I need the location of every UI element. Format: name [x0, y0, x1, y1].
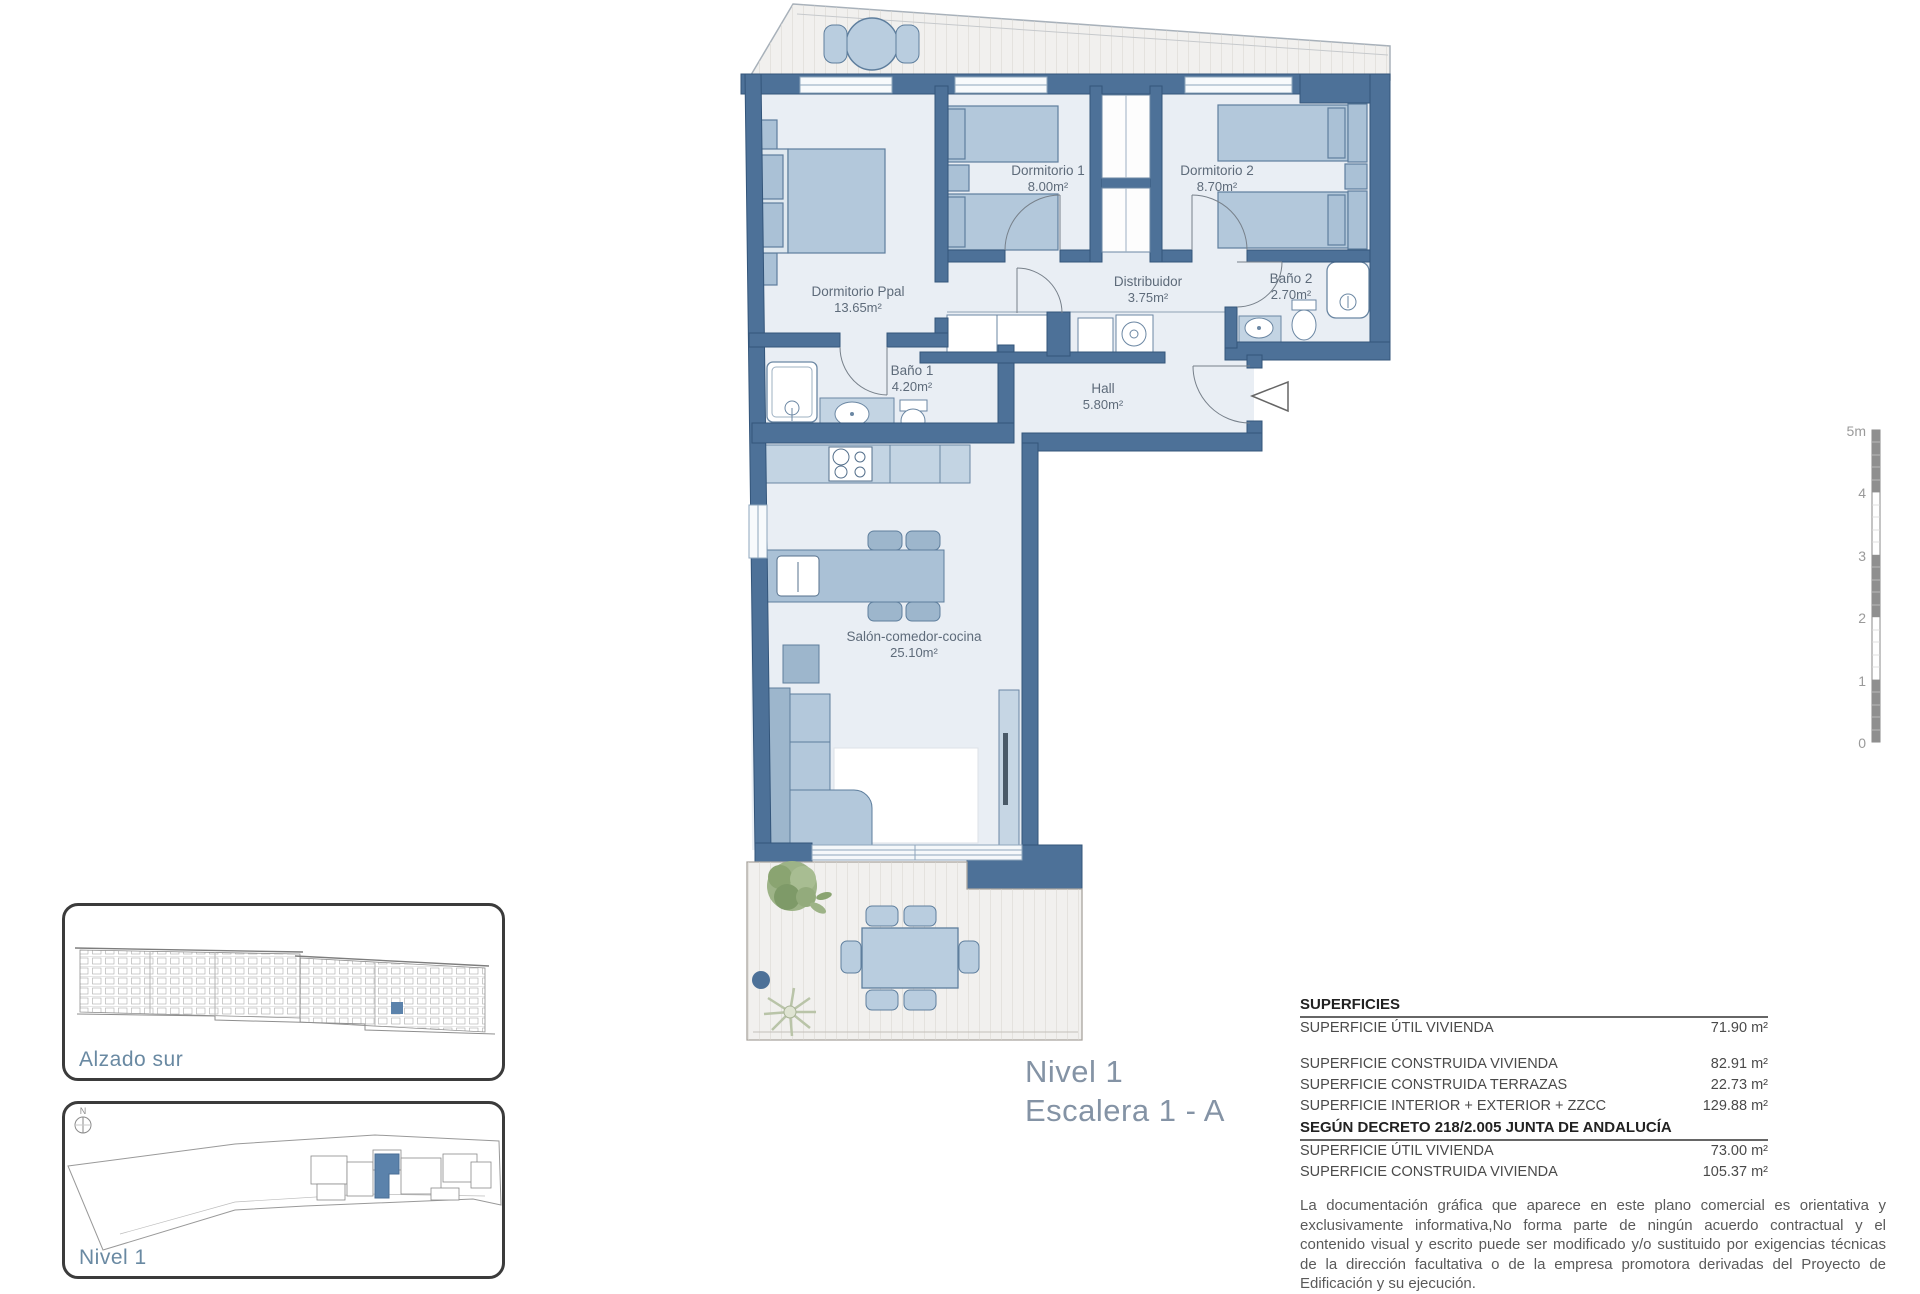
- window: [1185, 77, 1292, 93]
- shower-tray: [1327, 262, 1369, 318]
- nightstand: [945, 165, 969, 191]
- terrace-dining-table: [862, 928, 958, 988]
- svg-text:8.70m²: 8.70m²: [1197, 179, 1238, 194]
- terrace-chair: [904, 906, 936, 926]
- chair: [868, 602, 902, 621]
- nivel-1-box: N Nivel 1: [62, 1101, 505, 1279]
- top-terrace: [748, 4, 1390, 80]
- scale-tick-0: 0: [1858, 735, 1866, 751]
- table-row: SUPERFICIE CONSTRUIDA VIVIENDA82.91 m²: [1300, 1054, 1768, 1075]
- svg-text:N: N: [80, 1106, 87, 1116]
- window: [749, 505, 767, 558]
- single-bed: [1218, 105, 1348, 161]
- highlighted-unit: [391, 1002, 403, 1014]
- wall-right: [1370, 74, 1390, 355]
- surfaces-title: SUPERFICIES: [1300, 996, 1768, 1018]
- wall-dorm2-bottom-r: [1247, 250, 1370, 262]
- built-in-closets: [1102, 95, 1150, 252]
- wall-distrib-bano2: [1225, 307, 1237, 348]
- north-arrow-icon: N: [75, 1106, 91, 1133]
- scale-tick-5m: 5m: [1847, 423, 1866, 439]
- scale-tick-1: 1: [1858, 673, 1866, 689]
- terrace-round-table: [846, 18, 898, 70]
- terrace-chair: [866, 906, 898, 926]
- single-bed: [1218, 192, 1348, 248]
- chair: [906, 602, 940, 621]
- room-label-bano-1: Baño 1: [891, 363, 934, 378]
- terrace-chair: [866, 990, 898, 1010]
- wall-laundry-bottom: [920, 352, 1165, 363]
- window: [955, 77, 1047, 93]
- tv-unit: [999, 690, 1019, 845]
- room-label-dormitorio-1: Dormitorio 1: [1011, 163, 1085, 178]
- nivel-1-label: Nivel 1: [79, 1246, 147, 1270]
- double-bed: [758, 149, 885, 253]
- wall-dorm1-bottom-l: [948, 250, 1005, 262]
- chair: [868, 531, 902, 550]
- room-label-salon: Salón-comedor-cocina: [846, 629, 982, 644]
- wall-slider-left: [755, 843, 812, 864]
- nightstand: [1345, 164, 1367, 189]
- legal-disclaimer: La documentación gráfica que aparece en …: [1300, 1196, 1886, 1294]
- scale-tick-2: 2: [1858, 610, 1866, 626]
- table-row: SUPERFICIE ÚTIL VIVIENDA71.90 m²: [1300, 1018, 1768, 1039]
- wall-laundry-pillar: [1047, 312, 1070, 356]
- table-row: SUPERFICIE CONSTRUIDA TERRAZAS22.73 m²: [1300, 1075, 1768, 1096]
- surfaces-table: SUPERFICIES SUPERFICIE ÚTIL VIVIENDA71.9…: [1300, 996, 1768, 1183]
- svg-text:8.00m²: 8.00m²: [1028, 179, 1069, 194]
- table-row: SUPERFICIE CONSTRUIDA VIVIENDA105.37 m²: [1300, 1162, 1768, 1183]
- terrace-chair: [841, 941, 861, 973]
- room-label-distribuidor: Distribuidor: [1114, 274, 1183, 289]
- wall-dorm1-bottom-r: [1060, 250, 1090, 262]
- svg-text:3.75m²: 3.75m²: [1128, 290, 1169, 305]
- alzado-sur-box: Alzado sur: [62, 903, 505, 1081]
- room-label-hall: Hall: [1091, 381, 1114, 396]
- window: [800, 77, 892, 93]
- wall-living-right: [1022, 443, 1038, 852]
- headboard: [1348, 191, 1367, 249]
- table-row: SUPERFICIE INTERIOR + EXTERIOR + ZZCC129…: [1300, 1096, 1768, 1117]
- terrace-chair: [824, 25, 847, 63]
- scale-tick-3: 3: [1858, 548, 1866, 564]
- room-label-dormitorio-2: Dormitorio 2: [1180, 163, 1254, 178]
- plan-title-stair: Escalera 1 - A: [1025, 1091, 1225, 1130]
- terrace-chair: [959, 941, 979, 973]
- chair: [906, 531, 940, 550]
- svg-text:25.10m²: 25.10m²: [890, 645, 938, 660]
- highlighted-unit: [375, 1154, 399, 1198]
- terrace-chair: [896, 25, 919, 63]
- side-table: [783, 645, 819, 683]
- wall-ppal-bottom-l: [749, 333, 840, 347]
- room-label-bano-2: Baño 2: [1270, 271, 1313, 286]
- floor-plan-page: { "plan": { "title_line1": "Nivel 1", "t…: [0, 0, 1920, 1280]
- terrace-column: [752, 971, 770, 989]
- wall-hall-bottom: [1022, 433, 1262, 451]
- scale-bar: 5m 4 3 2 1 0: [1847, 423, 1880, 751]
- scale-tick-4: 4: [1858, 485, 1866, 501]
- alzado-sur-label: Alzado sur: [79, 1048, 183, 1072]
- wall-dorm2-bottom-l: [1162, 250, 1192, 262]
- closet-separator: [1102, 178, 1150, 188]
- room-label-dormitorio-ppal: Dormitorio Ppal: [811, 284, 904, 299]
- washing-machine: [1116, 315, 1153, 352]
- decree-title: SEGÚN DECRETO 218/2.005 JUNTA DE ANDALUC…: [1300, 1119, 1768, 1141]
- svg-text:13.65m²: 13.65m²: [834, 300, 882, 315]
- wall-kitchen-top: [752, 423, 1014, 443]
- wall-ppal-bottom-r: [887, 333, 948, 347]
- svg-text:2.70m²: 2.70m²: [1271, 287, 1312, 302]
- entry-direction-icon: [1252, 382, 1288, 411]
- hob: [829, 447, 872, 481]
- table-row: SUPERFICIE ÚTIL VIVIENDA73.00 m²: [1300, 1141, 1768, 1162]
- single-bed: [945, 106, 1058, 162]
- wall-closet-left: [1090, 86, 1102, 262]
- svg-text:5.80m²: 5.80m²: [1083, 397, 1124, 412]
- terrace-chair: [904, 990, 936, 1010]
- wall-closet-right: [1150, 86, 1162, 262]
- wall-ppal-dorm1: [935, 86, 948, 282]
- headboard: [1348, 104, 1367, 162]
- toilet: [1292, 300, 1316, 340]
- plan-title: Nivel 1 Escalera 1 - A: [1025, 1052, 1225, 1130]
- svg-text:4.20m²: 4.20m²: [892, 379, 933, 394]
- sliding-glass-door: [812, 845, 1022, 860]
- plan-title-level: Nivel 1: [1025, 1052, 1225, 1091]
- single-bed: [945, 194, 1058, 250]
